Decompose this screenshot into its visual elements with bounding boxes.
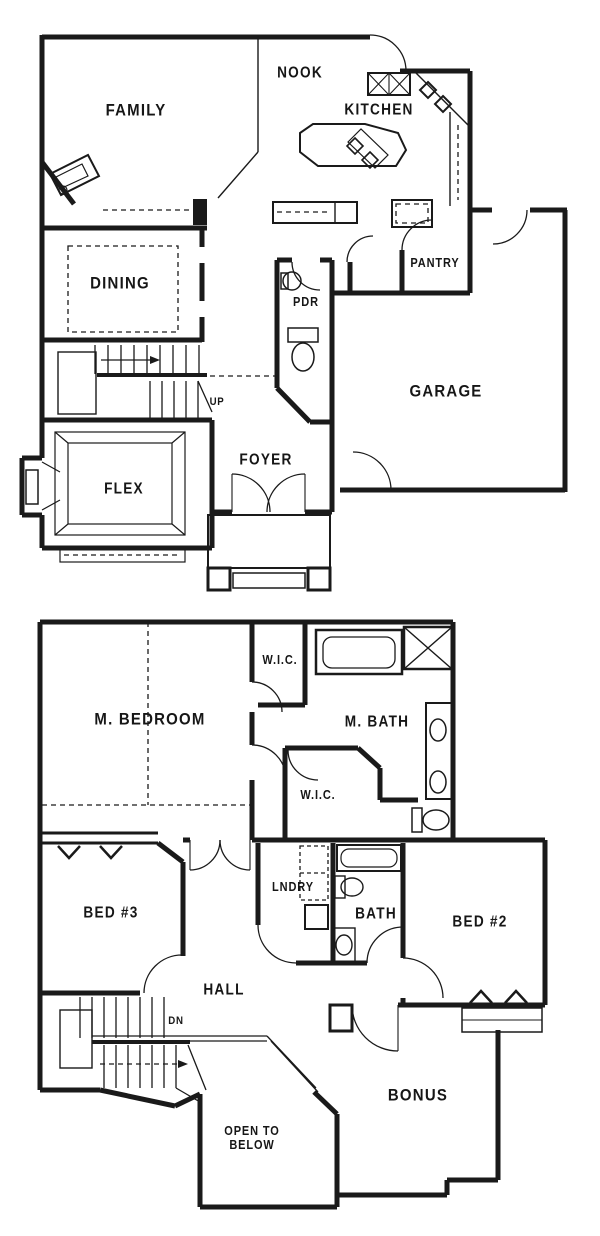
room-label-master-bedroom: M. BEDROOM <box>94 709 205 728</box>
room-label-master-bath: M. BATH <box>345 713 409 730</box>
room-label-flex: FLEX <box>104 480 144 497</box>
front-porch <box>208 515 330 590</box>
room-label-family: FAMILY <box>106 100 167 119</box>
floor-plan-drawing <box>0 0 600 1236</box>
room-label-pdr: PDR <box>293 295 319 309</box>
bed3-window-band <box>40 833 352 1031</box>
room-label-nook: NOOK <box>277 64 323 81</box>
room-label-hall: HALL <box>203 981 244 998</box>
room-label-laundry: LNDRY <box>272 880 314 894</box>
second-floor-door-arcs <box>144 682 443 1051</box>
floor-plan-page: FAMILY NOOK KITCHEN DINING PDR PANTRY GA… <box>0 0 600 1236</box>
room-label-bed-3: BED #3 <box>83 904 138 921</box>
fireplace-icon <box>50 155 99 195</box>
room-label-garage: GARAGE <box>409 381 482 400</box>
room-label-dining: DINING <box>90 273 150 292</box>
room-label-kitchen: KITCHEN <box>344 101 413 118</box>
powder-room-fixtures <box>281 272 318 371</box>
first-floor-partitions <box>218 37 470 206</box>
room-label-bath: BATH <box>355 905 397 922</box>
bed2-window-seat <box>462 1008 542 1032</box>
first-floor-stairs <box>58 345 212 418</box>
stairs-dn-label: DN <box>168 1015 183 1027</box>
hall-bath-fixtures <box>333 845 401 962</box>
room-label-bed-2: BED #2 <box>452 913 507 930</box>
room-label-foyer: FOYER <box>239 451 292 468</box>
stairs-up-label: UP <box>210 396 225 408</box>
overlook-railing <box>92 1036 318 1092</box>
room-label-wic-2: W.I.C. <box>300 788 335 802</box>
family-pillar <box>193 199 207 225</box>
room-label-wic-1: W.I.C. <box>262 653 297 667</box>
room-label-pantry: PANTRY <box>410 256 459 270</box>
room-label-bonus: BONUS <box>388 1085 448 1104</box>
open-to-below-label: OPEN TO BELOW <box>224 1124 279 1152</box>
second-floor-stairs <box>60 997 206 1102</box>
